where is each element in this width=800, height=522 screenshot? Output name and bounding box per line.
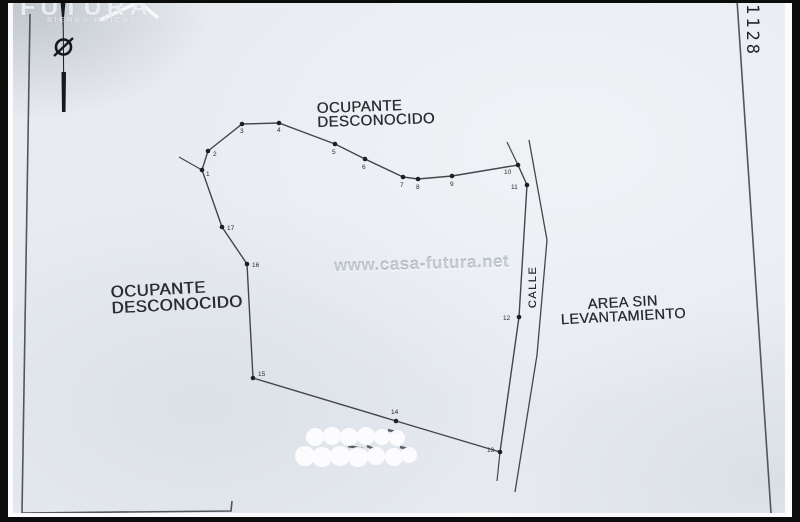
vertex-dot xyxy=(240,122,245,127)
boundary-extension-line xyxy=(179,157,202,170)
photo-edge-right xyxy=(792,0,800,522)
photo-edge-left xyxy=(0,0,8,522)
vertex-number: 4 xyxy=(277,127,281,134)
vertex-number: 10 xyxy=(504,169,512,176)
redaction-blob xyxy=(385,448,403,466)
vertex-number: 11 xyxy=(511,184,518,191)
sheet-corner-number: 1128 xyxy=(742,4,762,57)
label-occupant-top: OCUPANTE DESCONOCIDO xyxy=(317,98,436,130)
sheet-frame-line xyxy=(22,501,232,513)
redaction-blob xyxy=(295,446,315,466)
vertex-dot xyxy=(525,183,530,188)
vertex-dot xyxy=(220,225,225,230)
vertex-dot xyxy=(206,149,211,154)
label-street-calle: CALLE xyxy=(509,263,557,311)
vertex-dot xyxy=(245,262,250,267)
photo-edge-highlight-right xyxy=(785,0,792,522)
vertex-dot xyxy=(401,175,406,180)
vertex-number: 12 xyxy=(503,315,511,322)
north-arrow-needle-bottom xyxy=(62,72,67,112)
vertex-dot xyxy=(251,376,256,381)
vertex-dot xyxy=(200,168,205,173)
vertex-number: 16 xyxy=(252,262,260,269)
redaction-blob xyxy=(367,447,385,465)
futura-logo-subtitle: BIENES RAICES xyxy=(47,15,138,24)
label-occupant-left: OCUPANTE DESCONOCIDO xyxy=(110,279,243,317)
vertex-number: 15 xyxy=(258,371,266,378)
vertex-dot xyxy=(450,174,455,179)
vertex-number: 14 xyxy=(391,409,399,416)
redaction-blob xyxy=(323,427,341,445)
vertex-number: 5 xyxy=(332,149,336,156)
vertex-dot xyxy=(416,177,421,182)
vertex-number: 8 xyxy=(416,184,420,191)
vertex-dot xyxy=(516,163,521,168)
redaction-blob xyxy=(330,446,350,466)
scanned-survey-photo: 1234567891011121314151617 FUTURA BIENES … xyxy=(0,0,800,522)
vertex-dot xyxy=(333,142,338,147)
redaction-blob xyxy=(374,429,390,445)
vertex-dot xyxy=(517,315,522,320)
vertex-number: 6 xyxy=(362,164,366,171)
vertex-dot xyxy=(498,450,503,455)
vertex-dot xyxy=(394,419,399,424)
vertex-number: 9 xyxy=(450,181,454,188)
redaction-blob xyxy=(348,447,368,467)
redaction-blob xyxy=(312,447,332,467)
redaction-blob xyxy=(401,447,417,463)
boundary-extension-line xyxy=(507,142,518,165)
redaction-blob xyxy=(306,428,324,446)
vertex-number: 13 xyxy=(487,447,495,454)
vertex-dot xyxy=(277,121,282,126)
vertex-number: 7 xyxy=(400,182,404,189)
photo-edge-top xyxy=(0,0,800,3)
vertex-number: 17 xyxy=(227,225,235,232)
parcel-boundary xyxy=(202,123,527,452)
sheet-frame-line xyxy=(737,0,771,513)
vertex-number: 1 xyxy=(206,171,210,178)
redaction-blob xyxy=(340,428,358,446)
label-occupant-top-line2: DESCONOCIDO xyxy=(317,112,435,130)
vertex-number: 3 xyxy=(240,128,244,135)
sheet-frame-line xyxy=(22,14,30,513)
photo-edge-bottom xyxy=(0,517,800,522)
boundary-extension-line xyxy=(497,452,500,481)
vertex-number: 2 xyxy=(213,151,217,158)
photo-edge-highlight-left xyxy=(8,2,13,522)
redaction-blob xyxy=(389,430,405,446)
redaction-blob xyxy=(357,427,375,445)
vertex-dot xyxy=(363,157,368,162)
